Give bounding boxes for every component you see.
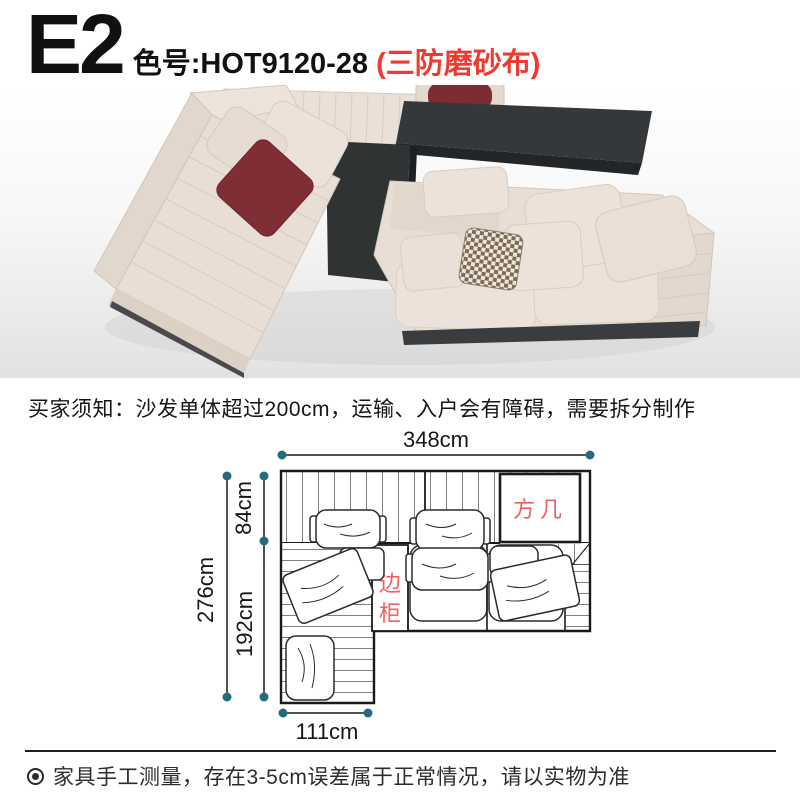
dimension-diagram-svg: 方几 边 柜 [190, 428, 620, 745]
sofa-illustration [0, 85, 800, 378]
fabric-badge: (三防磨砂布) [376, 40, 540, 82]
bullet-icon [27, 768, 44, 785]
square-table-label: 方几 [513, 497, 567, 522]
floor-plan: 方几 边 柜 [281, 471, 590, 703]
footer-disclaimer: 家具手工测量，存在3-5cm误差属于正常情况，请以实物为准 [27, 761, 630, 791]
dim-total-depth: 276cm [193, 557, 218, 623]
dim-chaise-width: 111cm [296, 719, 359, 744]
product-header: E2 色号:HOT9120-28 (三防磨砂布) [26, 2, 540, 86]
buyer-notice: 买家须知：沙发单体超过200cm，运输、入户会有障碍，需要拆分制作 [28, 393, 696, 423]
dimension-diagram: 方几 边 柜 [190, 428, 620, 750]
side-table [394, 101, 652, 175]
dim-front-depth: 192cm [232, 591, 257, 657]
dim-back-depth: 84cm [231, 481, 256, 535]
disclaimer-text: 家具手工测量，存在3-5cm误差属于正常情况，请以实物为准 [53, 761, 630, 791]
houndstooth-pillow [458, 227, 524, 291]
variant-code: E2 [26, 2, 123, 86]
square-table-box: 方几 [500, 474, 580, 542]
footer-divider [25, 750, 776, 752]
side-cabinet-label-bottom: 柜 [379, 601, 401, 626]
dim-total-width: 348cm [403, 428, 469, 452]
color-code-label: 色号:HOT9120-28 [133, 40, 368, 82]
product-photo [0, 85, 800, 378]
